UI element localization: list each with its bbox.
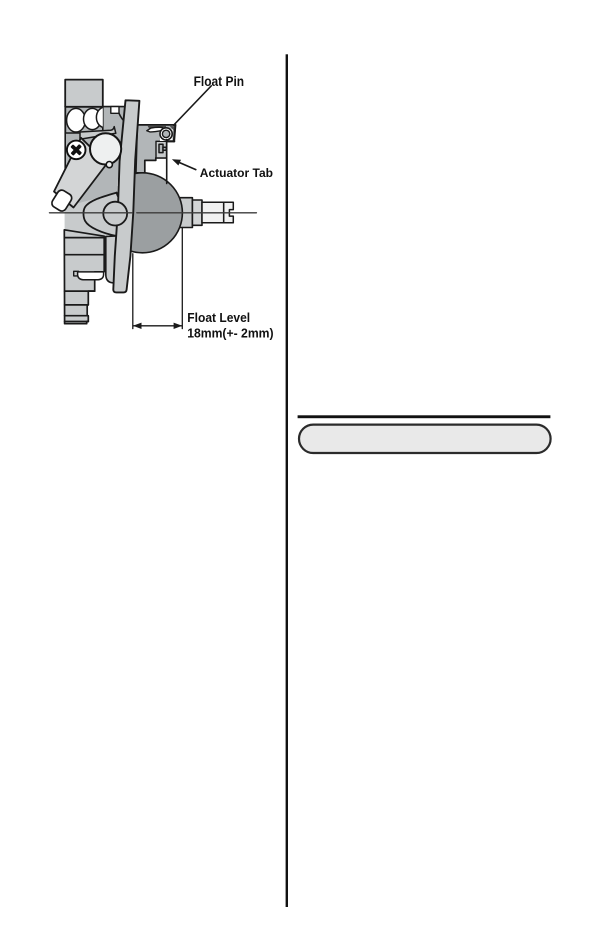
svg-text:Float Pin: Float Pin (194, 74, 245, 89)
svg-text:18mm(+- 2mm): 18mm(+- 2mm) (187, 325, 273, 340)
svg-text:Actuator Tab: Actuator Tab (200, 166, 274, 180)
svg-text:Float Level: Float Level (187, 310, 250, 325)
